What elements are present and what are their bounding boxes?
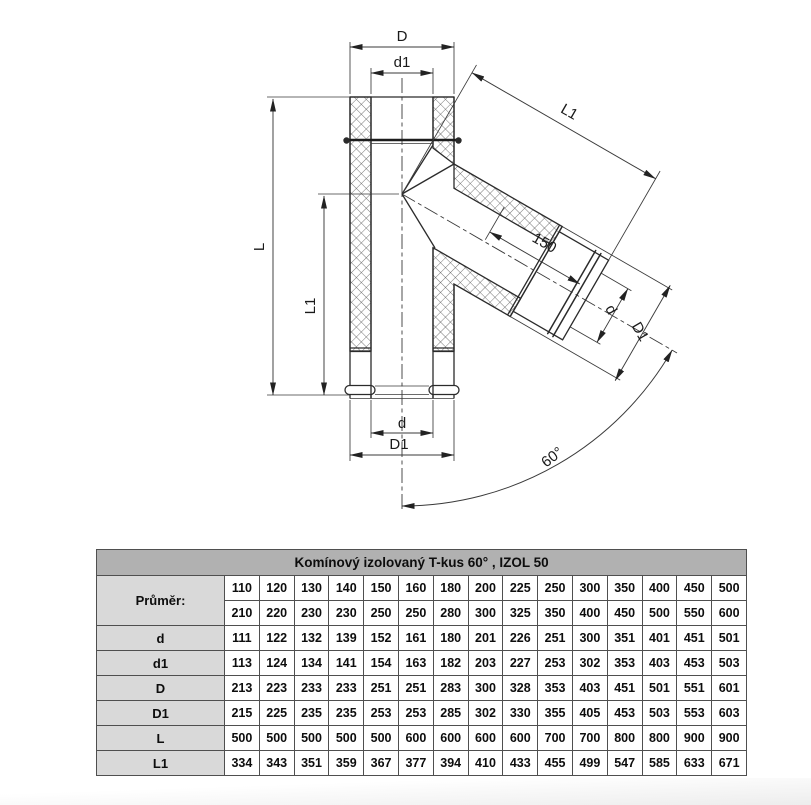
diameter-value-cell: 110: [225, 576, 260, 601]
junction-lines: [402, 145, 454, 248]
diameter-value-cell: 300: [572, 576, 607, 601]
value-cell: 300: [468, 676, 503, 701]
value-cell: 351: [607, 626, 642, 651]
diameter-value-cell: 220: [259, 601, 294, 626]
value-cell: 547: [607, 751, 642, 776]
value-cell: 302: [572, 651, 607, 676]
diameter-value-cell: 250: [398, 601, 433, 626]
diameter-value-cell: 400: [642, 576, 677, 601]
label-d-bottom: d: [398, 415, 406, 432]
value-cell: 302: [468, 701, 503, 726]
value-cell: 501: [712, 626, 747, 651]
diameter-value-cell: 350: [538, 601, 573, 626]
value-cell: 223: [259, 676, 294, 701]
value-cell: 500: [259, 726, 294, 751]
value-cell: 503: [642, 701, 677, 726]
value-cell: 351: [294, 751, 329, 776]
value-cell: 403: [572, 676, 607, 701]
value-cell: 203: [468, 651, 503, 676]
label-D: D: [397, 28, 408, 45]
value-cell: 330: [503, 701, 538, 726]
label-L1-left: L1: [302, 298, 319, 315]
value-cell: 603: [712, 701, 747, 726]
diameter-value-cell: 250: [538, 576, 573, 601]
value-cell: 139: [329, 626, 364, 651]
diameter-value-cell: 500: [642, 601, 677, 626]
label-d1: d1: [394, 54, 411, 71]
value-cell: 367: [364, 751, 399, 776]
value-cell: 152: [364, 626, 399, 651]
value-cell: 800: [607, 726, 642, 751]
value-cell: 553: [677, 701, 712, 726]
row-label-cell: L: [97, 726, 225, 751]
label-L: L: [251, 243, 268, 251]
value-cell: 600: [433, 726, 468, 751]
value-cell: 201: [468, 626, 503, 651]
table-row: d111312413414115416318220322725330235340…: [97, 651, 747, 676]
diameter-value-cell: 210: [225, 601, 260, 626]
value-cell: 455: [538, 751, 573, 776]
value-cell: 355: [538, 701, 573, 726]
row-label-cell: d: [97, 626, 225, 651]
diameter-value-cell: 400: [572, 601, 607, 626]
value-cell: 600: [468, 726, 503, 751]
value-cell: 227: [503, 651, 538, 676]
value-cell: 343: [259, 751, 294, 776]
label-angle: 60°: [538, 444, 566, 471]
value-cell: 215: [225, 701, 260, 726]
label-D1-bottom: D1: [389, 436, 408, 453]
value-cell: 235: [294, 701, 329, 726]
value-cell: 401: [642, 626, 677, 651]
value-cell: 499: [572, 751, 607, 776]
diameter-value-cell: 325: [503, 601, 538, 626]
diameter-value-cell: 450: [607, 601, 642, 626]
value-cell: 403: [642, 651, 677, 676]
value-cell: 503: [712, 651, 747, 676]
value-cell: 900: [712, 726, 747, 751]
value-cell: 700: [572, 726, 607, 751]
diameter-value-cell: 280: [433, 601, 468, 626]
value-cell: 453: [607, 701, 642, 726]
value-cell: 285: [433, 701, 468, 726]
value-cell: 633: [677, 751, 712, 776]
right-insulation-upper: [433, 97, 454, 164]
value-cell: 180: [433, 626, 468, 651]
background-fade: [0, 778, 811, 805]
value-cell: 251: [538, 626, 573, 651]
dimension-labels: D d1 L L1 L1 150 d D1 d D1 60°: [251, 28, 652, 471]
value-cell: 377: [398, 751, 433, 776]
value-cell: 253: [398, 701, 433, 726]
value-cell: 111: [225, 626, 260, 651]
diameter-value-cell: 450: [677, 576, 712, 601]
value-cell: 500: [364, 726, 399, 751]
value-cell: 501: [642, 676, 677, 701]
diameter-value-cell: 225: [503, 576, 538, 601]
value-cell: 113: [225, 651, 260, 676]
value-cell: 334: [225, 751, 260, 776]
branch-insulation-top: [454, 164, 562, 245]
value-cell: 251: [398, 676, 433, 701]
diameter-value-cell: 180: [433, 576, 468, 601]
value-cell: 671: [712, 751, 747, 776]
value-cell: 394: [433, 751, 468, 776]
diameter-value-cell: 230: [294, 601, 329, 626]
row-label-cell: d1: [97, 651, 225, 676]
value-cell: 163: [398, 651, 433, 676]
value-cell: 122: [259, 626, 294, 651]
value-cell: 141: [329, 651, 364, 676]
value-cell: 500: [329, 726, 364, 751]
value-cell: 213: [225, 676, 260, 701]
value-cell: 600: [398, 726, 433, 751]
value-cell: 353: [607, 651, 642, 676]
angle-arc: [402, 350, 672, 506]
row-label-cell: D1: [97, 701, 225, 726]
dimension-table-body: Průměr:110120130140150160180200225250300…: [97, 576, 747, 776]
value-cell: 451: [677, 626, 712, 651]
value-cell: 405: [572, 701, 607, 726]
value-cell: 551: [677, 676, 712, 701]
value-cell: 154: [364, 651, 399, 676]
diameter-value-cell: 600: [712, 601, 747, 626]
value-cell: 800: [642, 726, 677, 751]
dimension-d-branch-line: [597, 289, 628, 343]
value-cell: 500: [225, 726, 260, 751]
tee-fitting-drawing: D d1 L L1 L1 150 d D1 d D1 60°: [235, 25, 695, 520]
value-cell: 700: [538, 726, 573, 751]
diameter-value-cell: 200: [468, 576, 503, 601]
value-cell: 253: [538, 651, 573, 676]
label-L1-branch: L1: [558, 101, 581, 124]
value-cell: 500: [294, 726, 329, 751]
value-cell: 283: [433, 676, 468, 701]
value-cell: 585: [642, 751, 677, 776]
value-cell: 251: [364, 676, 399, 701]
value-cell: 233: [294, 676, 329, 701]
value-cell: 226: [503, 626, 538, 651]
row-label-diameter: Průměr:: [97, 576, 225, 626]
diameter-value-cell: 130: [294, 576, 329, 601]
diameter-value-cell: 150: [364, 576, 399, 601]
value-cell: 451: [607, 676, 642, 701]
diameter-value-cell: 550: [677, 601, 712, 626]
value-cell: 453: [677, 651, 712, 676]
value-cell: 132: [294, 626, 329, 651]
dimension-table: Komínový izolovaný T-kus 60° , IZOL 50 P…: [96, 549, 747, 776]
value-cell: 253: [364, 701, 399, 726]
diameter-value-cell: 500: [712, 576, 747, 601]
value-cell: 601: [712, 676, 747, 701]
table-row: L133434335135936737739441043345549954758…: [97, 751, 747, 776]
table-row: D213223233233251251283300328353403451501…: [97, 676, 747, 701]
row-label-cell: L1: [97, 751, 225, 776]
diameter-value-cell: 250: [364, 601, 399, 626]
branch-pipe: [454, 164, 609, 340]
value-cell: 600: [503, 726, 538, 751]
value-cell: 233: [329, 676, 364, 701]
right-insulation-lower: [433, 248, 521, 351]
value-cell: 300: [572, 626, 607, 651]
extension-lines: [267, 42, 672, 461]
value-cell: 900: [677, 726, 712, 751]
value-cell: 182: [433, 651, 468, 676]
value-cell: 433: [503, 751, 538, 776]
value-cell: 225: [259, 701, 294, 726]
row-label-cell: D: [97, 676, 225, 701]
value-cell: 359: [329, 751, 364, 776]
table-row: D121522523523525325328530233035540545350…: [97, 701, 747, 726]
diameter-value-cell: 160: [398, 576, 433, 601]
value-cell: 134: [294, 651, 329, 676]
value-cell: 124: [259, 651, 294, 676]
value-cell: 161: [398, 626, 433, 651]
table-row: d111122132139152161180201226251300351401…: [97, 626, 747, 651]
value-cell: 328: [503, 676, 538, 701]
diameter-value-cell: 300: [468, 601, 503, 626]
diameter-value-cell: 120: [259, 576, 294, 601]
table-title: Komínový izolovaný T-kus 60° , IZOL 50: [97, 550, 747, 576]
dimension-L1-branch-line: [472, 73, 656, 179]
left-insulation: [350, 97, 371, 351]
diameter-value-cell: 230: [329, 601, 364, 626]
table-row: L500500500500500600600600600700700800800…: [97, 726, 747, 751]
value-cell: 353: [538, 676, 573, 701]
diameter-value-cell: 140: [329, 576, 364, 601]
value-cell: 235: [329, 701, 364, 726]
value-cell: 410: [468, 751, 503, 776]
diameter-value-cell: 350: [607, 576, 642, 601]
